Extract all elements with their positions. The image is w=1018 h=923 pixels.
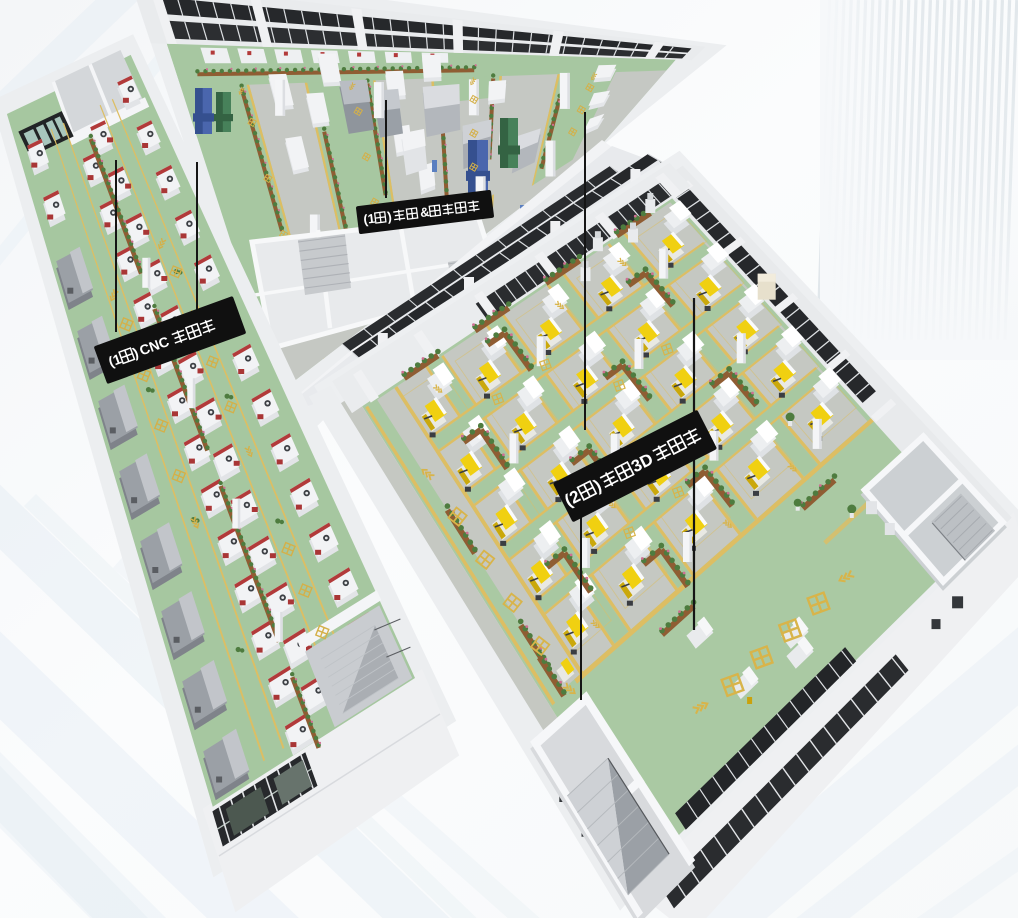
svg-text:(1: (1 bbox=[363, 211, 376, 227]
